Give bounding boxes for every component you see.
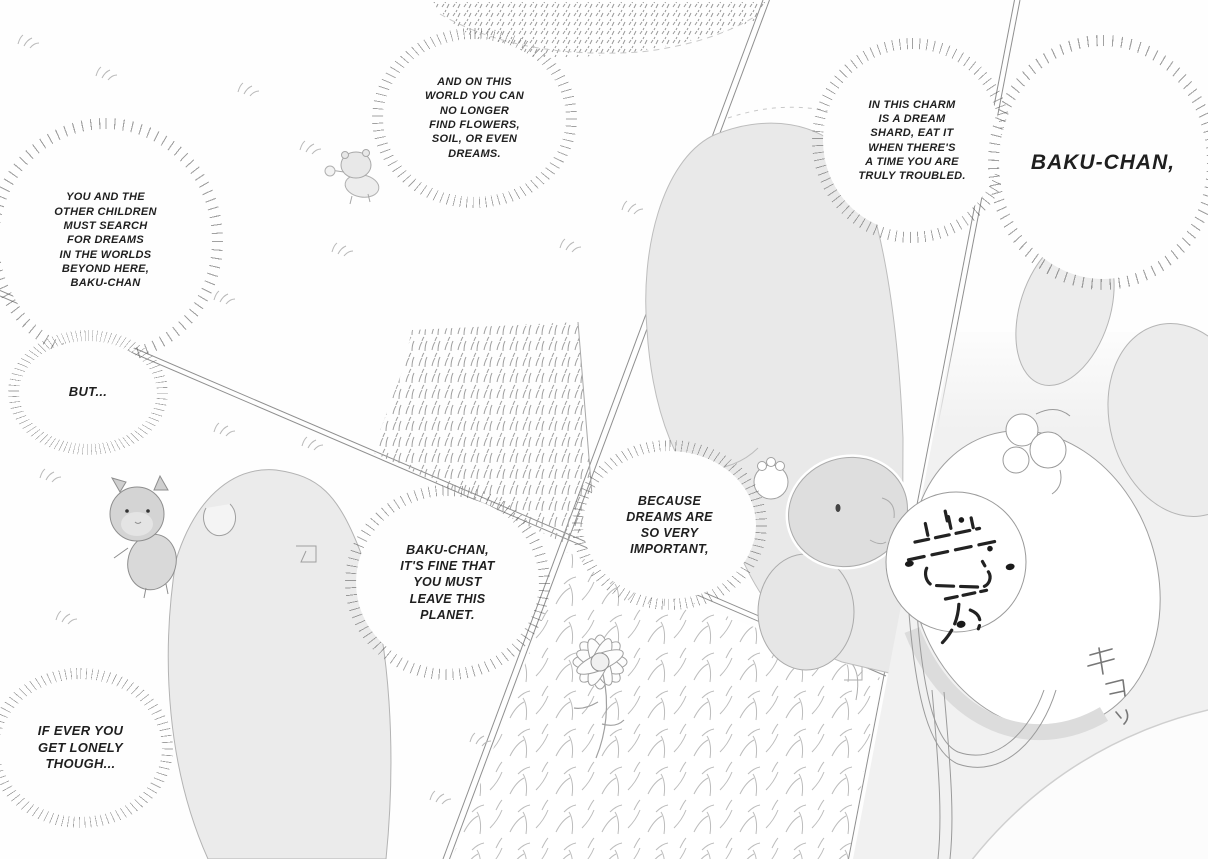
mother-bear-back-drawing	[168, 470, 391, 859]
bubble-text: YOU AND THE OTHER CHILDREN MUST SEARCH F…	[54, 190, 157, 290]
right-panel-art	[853, 222, 1208, 859]
bubble-text: BAKU-CHAN,	[1031, 149, 1175, 176]
speech-bubble-in-this-charm: IN THIS CHARM IS A DREAM SHARD, EAT IT W…	[812, 38, 1012, 243]
bubble-text: BAKU-CHAN, IT'S FINE THAT YOU MUST LEAVE…	[400, 542, 494, 623]
bubble-text: IN THIS CHARM IS A DREAM SHARD, EAT IT W…	[858, 98, 965, 184]
speech-bubble-baku-chan: BAKU-CHAN,	[988, 35, 1208, 290]
tiny-cub-drawing	[325, 150, 381, 205]
bear-cub-drawing	[110, 476, 182, 598]
speech-bubble-and-on-this: AND ON THIS WORLD YOU CAN NO LONGER FIND…	[372, 28, 577, 208]
manga-page: { "page": { "type": "manga page (two-pag…	[0, 0, 1208, 859]
speech-bubble-because: BECAUSE DREAMS ARE SO VERY IMPORTANT,	[572, 440, 767, 610]
speech-bubble-but: BUT...	[8, 330, 168, 455]
bubble-text: IF EVER YOU GET LONELY THOUGH...	[38, 723, 123, 774]
bubble-text: BECAUSE DREAMS ARE SO VERY IMPORTANT,	[626, 493, 713, 558]
bubble-text: AND ON THIS WORLD YOU CAN NO LONGER FIND…	[425, 75, 524, 161]
bubble-text: BUT...	[69, 384, 107, 401]
speech-bubble-its-fine: BAKU-CHAN, IT'S FINE THAT YOU MUST LEAVE…	[345, 485, 550, 680]
